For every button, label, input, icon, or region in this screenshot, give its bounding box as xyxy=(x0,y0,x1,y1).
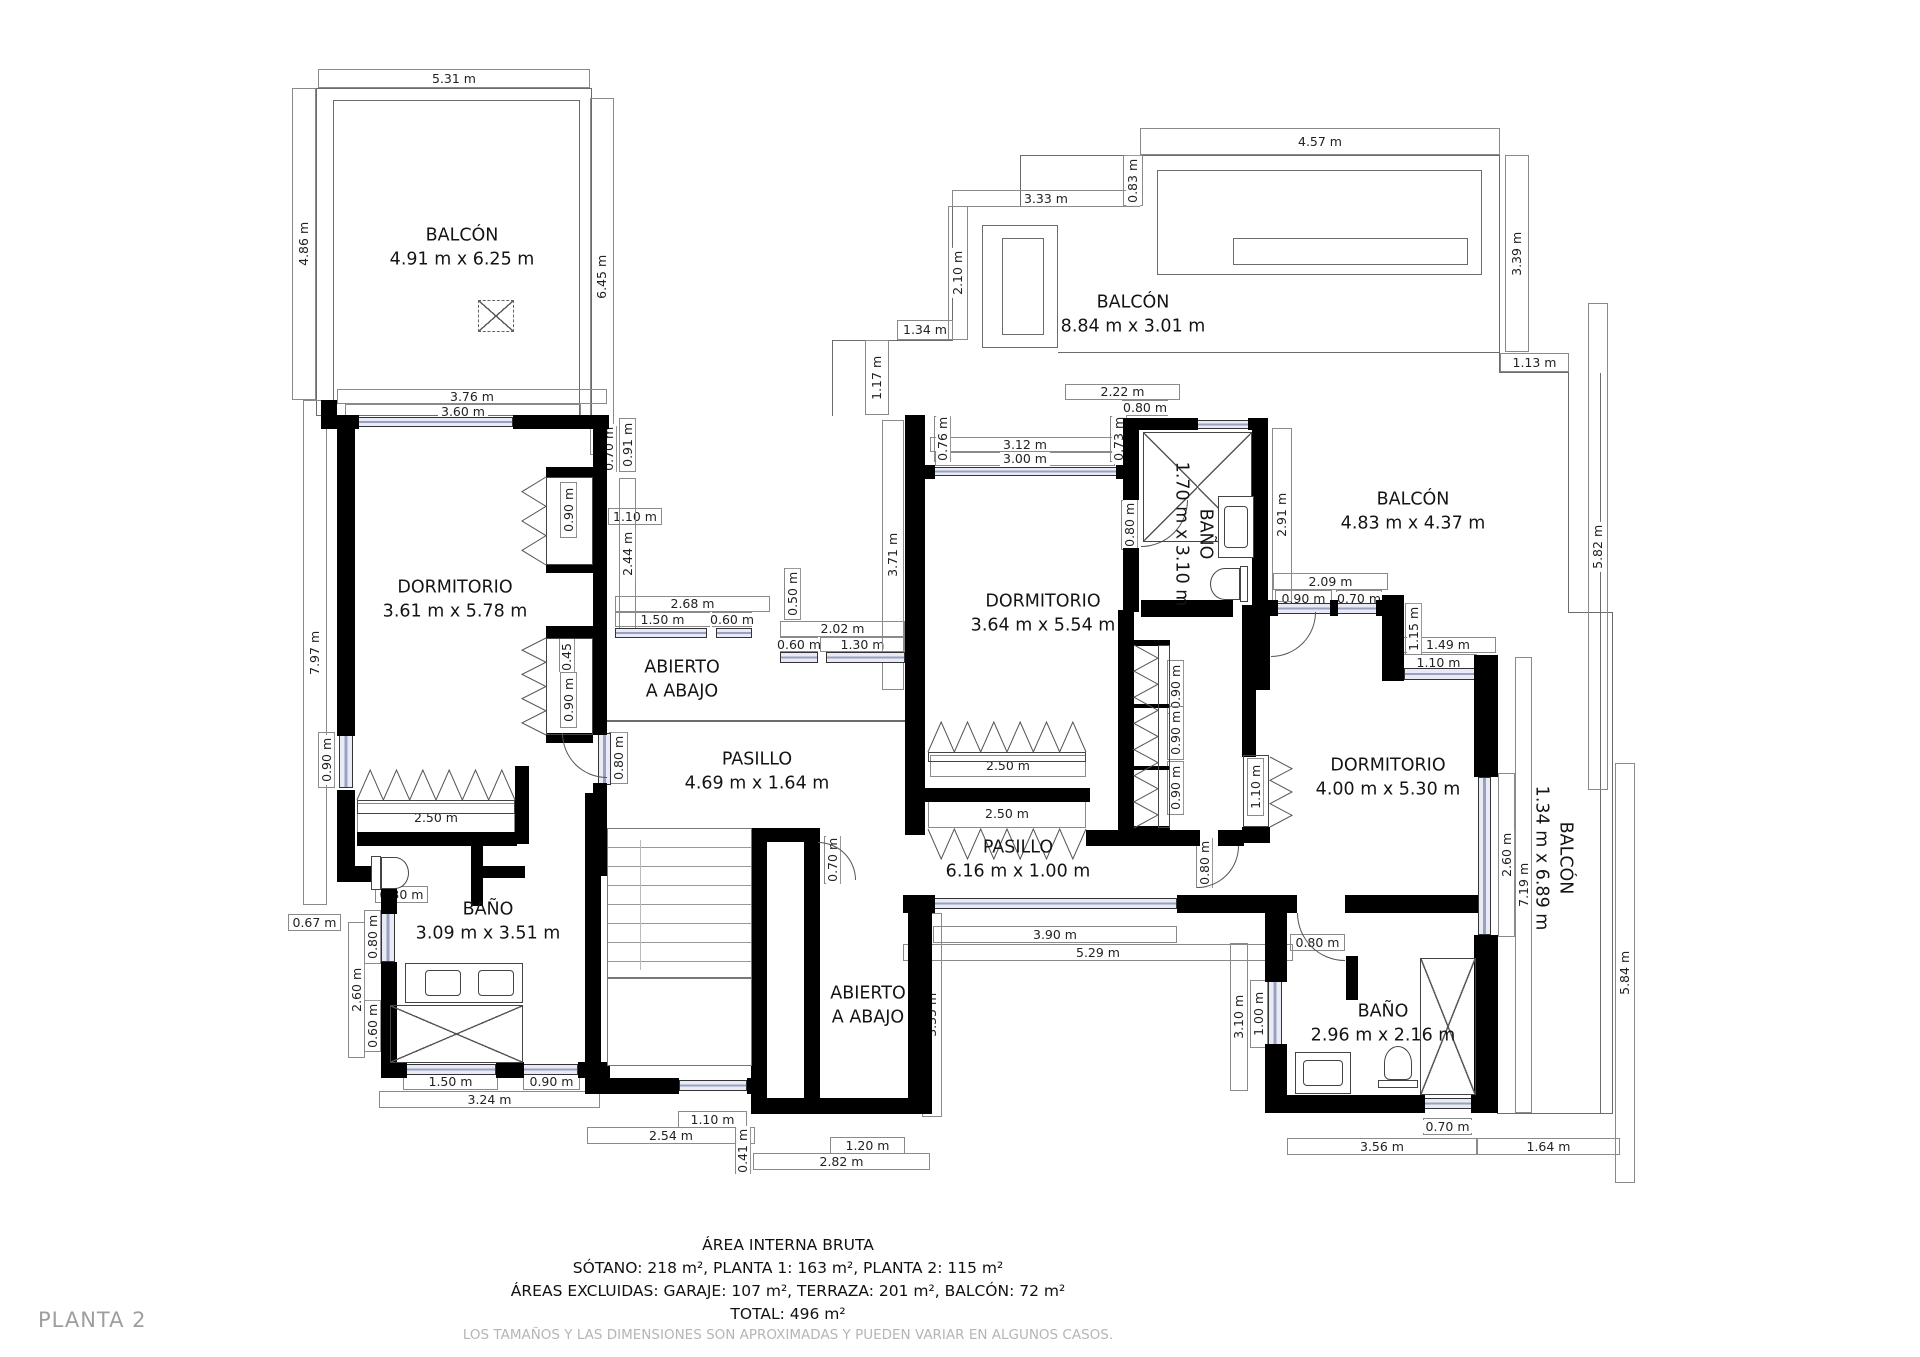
wall-segment xyxy=(337,415,359,429)
room-name: DORMITORIO xyxy=(1316,754,1461,778)
wall-segment xyxy=(1086,830,1200,846)
dimension-text: 0.41 m xyxy=(736,1126,750,1176)
dimension-label: 0.41 m xyxy=(735,1128,751,1174)
footer-excluded: ÁREAS EXCLUIDAS: GARAJE: 107 m², TERRAZA… xyxy=(511,1282,1065,1300)
dimension-text: 5.84 m xyxy=(1618,948,1632,998)
dimension-text: 1.00 m xyxy=(1252,989,1266,1039)
room-label: ABIERTOA ABAJO xyxy=(644,656,720,703)
window xyxy=(381,912,395,962)
room-size: 2.96 m x 2.16 m xyxy=(1311,1024,1456,1048)
dimension-text: 1.30 m xyxy=(838,638,888,652)
dimension-text: 0.50 m xyxy=(786,569,800,619)
wall-segment xyxy=(1265,1095,1425,1113)
room-label: BAÑO3.09 m x 3.51 m xyxy=(416,898,561,945)
dimension-label: 0.67 m xyxy=(288,914,341,931)
dimension-label: 3.10 m xyxy=(1230,943,1248,1091)
dimension-text: 2.54 m xyxy=(646,1129,696,1143)
outline xyxy=(1233,238,1468,265)
wall-segment xyxy=(585,793,601,1080)
dimension-label: 2.68 m xyxy=(615,596,770,612)
outline xyxy=(607,720,905,722)
dimension-label: 3.33 m xyxy=(952,190,1140,207)
closet-doors xyxy=(522,477,546,565)
room-size: 8.84 m x 3.01 m xyxy=(1061,315,1206,339)
dimension-text: 5.82 m xyxy=(1591,522,1605,572)
window xyxy=(1268,980,1282,1046)
wall-segment xyxy=(357,832,517,846)
closet-doors xyxy=(928,722,1086,752)
wall-segment xyxy=(1218,830,1244,846)
room-label: PASILLO6.16 m x 1.00 m xyxy=(946,836,1091,883)
dimension-label: 0.80 m xyxy=(1121,500,1138,550)
dimension-text: 0.90 m xyxy=(1169,662,1183,712)
wall-segment xyxy=(1242,605,1270,690)
dimension-label: 2.60 m xyxy=(1498,773,1515,937)
wall-segment xyxy=(1330,600,1338,616)
dimension-label: 0.91 m xyxy=(619,418,636,472)
wall-segment xyxy=(1123,418,1139,500)
dimension-label: 0.90 m xyxy=(523,1073,580,1090)
outline xyxy=(1020,155,1500,156)
dimension-label: 3.90 m xyxy=(933,926,1177,943)
wall-segment xyxy=(1382,595,1404,681)
window xyxy=(933,898,1177,909)
dimension-text: 3.24 m xyxy=(465,1093,515,1107)
dimension-label: 1.17 m xyxy=(865,340,889,415)
window xyxy=(1336,603,1378,614)
dimension-text: 1.34 m xyxy=(900,323,950,337)
dimension-label: 0.76 m xyxy=(934,416,951,462)
door-arc xyxy=(1197,846,1239,888)
outline xyxy=(832,340,833,416)
dimension-text: 0.80 m xyxy=(1123,500,1137,550)
footer-area-title: ÁREA INTERNA BRUTA xyxy=(702,1236,874,1254)
window xyxy=(339,734,353,788)
footer-areas: SÓTANO: 218 m², PLANTA 1: 163 m², PLANTA… xyxy=(573,1259,1003,1277)
dimension-label: 2.10 m xyxy=(948,206,968,340)
outline xyxy=(1499,155,1500,353)
wall-segment xyxy=(1252,418,1268,612)
dimension-label: 3.12 m xyxy=(930,437,1120,452)
wall-segment xyxy=(483,866,525,878)
dimension-text: 0.76 m xyxy=(936,414,950,464)
wall-segment xyxy=(1471,1095,1498,1113)
dimension-text: 0.67 m xyxy=(290,916,340,930)
wall-segment xyxy=(1345,895,1478,913)
dimension-label: 2.50 m xyxy=(928,800,1086,828)
sink xyxy=(1224,506,1248,548)
room-name: BALCÓN xyxy=(1553,786,1577,931)
plan-title: PLANTA 2 xyxy=(38,1308,147,1332)
room-label: BALCÓN1.34 m x 6.89 m xyxy=(1529,786,1576,931)
dimension-text: 3.00 m xyxy=(1000,452,1050,466)
dimension-label: 2.44 m xyxy=(619,478,636,630)
dimension-text: 2.68 m xyxy=(668,597,718,611)
dimension-label: 1.20 m xyxy=(830,1137,905,1154)
window xyxy=(1423,1098,1473,1109)
wall-segment xyxy=(908,895,932,1114)
wall-segment xyxy=(1123,548,1139,612)
closet-box xyxy=(1243,755,1269,827)
dimension-text: 1.64 m xyxy=(1524,1140,1574,1154)
window xyxy=(357,417,513,427)
window xyxy=(716,628,752,638)
dimension-label: 3.24 m xyxy=(379,1091,600,1108)
dimension-label: 1.50 m xyxy=(403,1073,498,1090)
skylight xyxy=(478,300,514,332)
sink xyxy=(425,970,461,996)
wall-segment xyxy=(337,790,355,872)
dimension-text: 2.60 m xyxy=(1500,830,1514,880)
room-name: BALCÓN xyxy=(1341,488,1486,512)
wall-segment xyxy=(546,564,593,573)
dimension-text: 5.31 m xyxy=(429,72,479,86)
dimension-text: 1.50 m xyxy=(638,613,688,627)
window xyxy=(522,1064,578,1075)
closet-box xyxy=(357,800,515,814)
room-label: BALCÓN8.84 m x 3.01 m xyxy=(1061,291,1206,338)
window xyxy=(780,652,818,663)
room-label: BALCÓN4.91 m x 6.25 m xyxy=(390,224,535,271)
room-name: PASILLO xyxy=(685,748,830,772)
outline xyxy=(1497,1113,1613,1114)
wall-segment xyxy=(925,788,1090,802)
room-size: 3.64 m x 5.54 m xyxy=(971,614,1116,638)
wall-segment xyxy=(925,465,935,479)
wall-segment xyxy=(513,415,609,429)
dimension-text: 3.56 m xyxy=(1357,1140,1407,1154)
dimension-label: 1.34 m xyxy=(897,320,953,340)
dimension-text: 7.97 m xyxy=(308,628,322,678)
footer-total: TOTAL: 496 m² xyxy=(730,1305,845,1323)
dimension-label: 0.50 m xyxy=(784,568,801,620)
footer-disclaimer: LOS TAMAÑOS Y LAS DIMENSIONES SON APROXI… xyxy=(463,1327,1113,1343)
wall-segment xyxy=(1346,956,1358,1000)
dimension-text: 1.10 m xyxy=(688,1113,738,1127)
dimension-text: 0.90 m xyxy=(1169,763,1183,813)
dimension-text: 2.09 m xyxy=(1306,575,1356,589)
dimension-text: 0.60 m xyxy=(774,638,824,652)
outline xyxy=(1002,238,1044,335)
closet-box xyxy=(546,638,593,735)
room-label: DORMITORIO4.00 m x 5.30 m xyxy=(1316,754,1461,801)
window xyxy=(615,628,707,638)
dimension-text: 2.10 m xyxy=(951,248,965,298)
stairs-landing xyxy=(607,978,752,1066)
dimension-label: 0.60 m xyxy=(780,637,818,652)
dimension-text: 3.39 m xyxy=(1510,229,1524,279)
dimension-text: 0.80 m xyxy=(612,733,626,783)
wall-segment xyxy=(471,846,483,906)
dimension-text: 0.90 m xyxy=(527,1075,577,1089)
room-label: BAÑO2.96 m x 2.16 m xyxy=(1311,1000,1456,1047)
wall-segment xyxy=(593,467,607,735)
dimension-text: 1.49 m xyxy=(1423,638,1473,652)
dimension-label: 1.64 m xyxy=(1477,1138,1620,1155)
dimension-label: 7.97 m xyxy=(303,400,327,905)
window xyxy=(933,467,1118,476)
dimension-text: 0.83 m xyxy=(1126,156,1140,206)
room-name: ABIERTO xyxy=(830,982,906,1006)
dimension-label: 1.00 m xyxy=(1250,980,1268,1048)
room-name: BALCÓN xyxy=(1061,291,1206,315)
dimension-text: 7.19 m xyxy=(1517,860,1531,910)
toilet-tank xyxy=(371,856,381,890)
dimension-label: 3.00 m xyxy=(935,452,1115,466)
sink xyxy=(478,970,514,996)
dimension-text: 3.33 m xyxy=(1021,192,1071,206)
room-name: DORMITORIO xyxy=(383,576,528,600)
dimension-text: 1.50 m xyxy=(426,1075,476,1089)
dimension-label: 0.80 m xyxy=(609,732,628,784)
dimension-text: 2.60 m xyxy=(350,965,364,1015)
dimension-text: 2.91 m xyxy=(1275,490,1289,540)
room-label: ABIERTOA ABAJO xyxy=(830,982,906,1029)
outline xyxy=(832,340,953,341)
toilet-bowl xyxy=(381,857,409,889)
dimension-text: 1.15 m xyxy=(1407,604,1421,654)
wall-segment xyxy=(751,828,820,842)
wall-segment xyxy=(903,895,935,913)
room-label: BALCÓN4.83 m x 4.37 m xyxy=(1341,488,1486,535)
dimension-label: 0.70 m xyxy=(1423,1118,1472,1135)
wall-segment xyxy=(515,766,529,844)
dimension-text: 3.71 m xyxy=(886,530,900,580)
room-label: DORMITORIO3.61 m x 5.78 m xyxy=(383,576,528,623)
dimension-text: 3.90 m xyxy=(1030,928,1080,942)
dimension-text: 4.57 m xyxy=(1295,135,1345,149)
closet-doors xyxy=(1270,757,1292,827)
wall-segment xyxy=(321,400,337,429)
dimension-text: 2.44 m xyxy=(621,529,635,579)
sink xyxy=(1303,1060,1343,1086)
dimension-label: 0.60 m xyxy=(712,612,752,627)
dimension-text: 1.13 m xyxy=(1510,356,1560,370)
dimension-label: 4.57 m xyxy=(1140,128,1500,155)
wall-segment xyxy=(546,626,593,638)
room-size: A ABAJO xyxy=(644,680,720,704)
wall-segment xyxy=(1242,827,1270,843)
wall-segment xyxy=(1474,935,1498,1097)
dimension-label: 3.56 m xyxy=(1287,1138,1477,1155)
dimension-text: 0.80 m xyxy=(1120,401,1170,415)
room-size: 4.91 m x 6.25 m xyxy=(390,248,535,272)
room-size: 4.69 m x 1.64 m xyxy=(685,772,830,796)
dimension-label: 3.39 m xyxy=(1505,155,1529,352)
dimension-label: 1.15 m xyxy=(1405,603,1422,655)
dimension-text: 3.76 m xyxy=(447,390,497,404)
door-arc xyxy=(818,842,856,880)
outline xyxy=(1612,612,1613,1113)
room-name: BALCÓN xyxy=(390,224,535,248)
wall-segment xyxy=(381,1062,407,1078)
room-name: DORMITORIO xyxy=(971,590,1116,614)
room-name: BAÑO xyxy=(416,898,561,922)
window xyxy=(826,652,905,663)
dimension-label: 2.60 m xyxy=(348,922,365,1058)
window xyxy=(1196,420,1250,429)
wall-segment xyxy=(905,415,925,835)
closet-doors xyxy=(522,638,546,735)
closet-box xyxy=(546,477,593,565)
dimension-text: 3.12 m xyxy=(1000,438,1050,452)
door-arc xyxy=(1271,612,1316,657)
room-name: BAÑO xyxy=(1311,1000,1456,1024)
dimension-text: 0.90 m xyxy=(1169,708,1183,758)
room-name: BAÑO xyxy=(1193,462,1217,607)
closet-doors xyxy=(1134,645,1158,828)
dimension-text: 2.22 m xyxy=(1098,385,1148,399)
wall-segment xyxy=(1242,688,1256,757)
outline xyxy=(1058,352,1500,353)
toilet-bowl xyxy=(1384,1046,1412,1080)
stairs-rail xyxy=(640,840,641,970)
room-label: BAÑO1.70 m x 3.10 m xyxy=(1169,462,1216,607)
dimension-text: 0.60 m xyxy=(366,1001,380,1051)
room-size: 1.34 m x 6.89 m xyxy=(1529,786,1553,931)
room-size: 1.70 m x 3.10 m xyxy=(1169,462,1193,607)
dimension-text: 0.80 m xyxy=(366,912,380,962)
wall-segment xyxy=(1123,418,1198,430)
room-size: 4.83 m x 4.37 m xyxy=(1341,512,1486,536)
dimension-label: 0.83 m xyxy=(1123,155,1143,206)
room-size: A ABAJO xyxy=(830,1006,906,1030)
dimension-label: 6.45 m xyxy=(590,98,614,455)
outline xyxy=(1568,373,1569,613)
room-size: 4.00 m x 5.30 m xyxy=(1316,778,1461,802)
room-size: 3.09 m x 3.51 m xyxy=(416,922,561,946)
toilet-tank xyxy=(1240,566,1248,602)
window xyxy=(405,1064,496,1075)
dimension-text: 1.20 m xyxy=(843,1139,893,1153)
wall-segment xyxy=(1265,895,1287,982)
dimension-text: 4.86 m xyxy=(297,219,311,269)
dimension-label: 1.13 m xyxy=(1500,353,1569,372)
dimension-label: 0.60 m xyxy=(364,1000,381,1052)
toilet-tank xyxy=(1378,1080,1418,1088)
closet-box xyxy=(1158,645,1170,828)
outline xyxy=(1499,372,1569,373)
dimension-text: 0.60 m xyxy=(707,613,757,627)
dimension-text: 1.17 m xyxy=(870,353,884,403)
wall-segment xyxy=(751,1098,820,1114)
dimension-text: 2.82 m xyxy=(817,1155,867,1169)
room-size: 3.61 m x 5.78 m xyxy=(383,600,528,624)
dimension-label: 3.71 m xyxy=(882,420,904,690)
dimension-text: 2.50 m xyxy=(982,807,1032,821)
room-name: ABIERTO xyxy=(644,656,720,680)
room-name: PASILLO xyxy=(946,836,1091,860)
dimension-label: 2.82 m xyxy=(753,1153,930,1170)
dimension-label: 0.80 m xyxy=(1122,400,1168,416)
window xyxy=(1404,668,1476,680)
dimension-label: 0.80 m xyxy=(364,910,381,964)
dimension-label: 3.76 m xyxy=(337,389,607,404)
door-arc xyxy=(562,733,607,778)
dimension-text: 0.90 m xyxy=(320,735,334,785)
wall-segment xyxy=(1118,610,1134,834)
window xyxy=(1478,777,1491,935)
dimension-label: 5.31 m xyxy=(318,69,590,88)
dimension-text: 2.02 m xyxy=(818,622,868,636)
closet-doors xyxy=(357,770,515,800)
shower xyxy=(390,1005,523,1063)
closet-box xyxy=(928,752,1086,762)
dimension-text: 6.45 m xyxy=(595,252,609,302)
stairs xyxy=(607,828,752,978)
dimension-label: 2.22 m xyxy=(1065,384,1180,400)
room-size: 6.16 m x 1.00 m xyxy=(946,860,1091,884)
dimension-label: 2.54 m xyxy=(587,1127,755,1144)
door-arc xyxy=(1297,913,1345,961)
wall-segment xyxy=(496,1062,524,1078)
dimension-label: 5.84 m xyxy=(1615,763,1635,1183)
dimension-text: 3.10 m xyxy=(1232,992,1246,1042)
room-label: PASILLO4.69 m x 1.64 m xyxy=(685,748,830,795)
dimension-text: 0.91 m xyxy=(621,420,635,470)
wall-segment xyxy=(585,1078,679,1094)
room-label: DORMITORIO3.64 m x 5.54 m xyxy=(971,590,1116,637)
window xyxy=(679,1080,747,1091)
wall-segment xyxy=(593,429,607,469)
wall-segment xyxy=(337,429,355,736)
dimension-label: 2.91 m xyxy=(1272,428,1292,602)
wall-segment xyxy=(1474,655,1498,777)
wall-segment xyxy=(751,828,767,1114)
dimension-label: 0.90 m xyxy=(318,732,335,788)
dimension-label: 5.82 m xyxy=(1588,303,1608,790)
floor-plan: 5.31 m3.76 m3.60 m4.57 m3.33 m1.34 m2.22… xyxy=(0,0,1920,1357)
dimension-label: 4.86 m xyxy=(292,88,316,400)
dimension-text: 5.29 m xyxy=(1073,946,1123,960)
dimension-text: 0.70 m xyxy=(1423,1120,1473,1134)
